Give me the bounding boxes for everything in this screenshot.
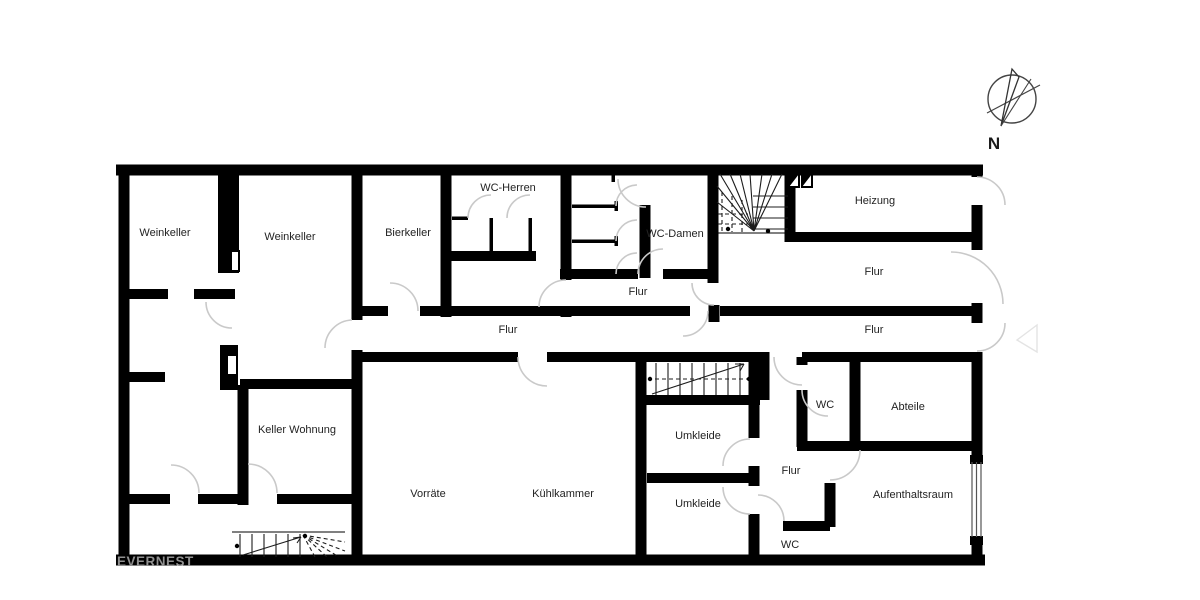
watermark-triangle bbox=[1017, 325, 1037, 352]
room-label-flur-rechts: Flur bbox=[865, 324, 884, 336]
room-label-flur-mitte: Flur bbox=[629, 286, 648, 298]
room-label-flur-haupt: Flur bbox=[499, 324, 518, 336]
door-arcs bbox=[171, 177, 1005, 521]
room-label-flur-unten: Flur bbox=[782, 465, 801, 477]
shaft-icon bbox=[789, 174, 812, 187]
floor-plan-svg: N Weinkeller Weinkeller Bierkeller WC-He… bbox=[0, 0, 1200, 600]
compass-icon bbox=[987, 69, 1040, 126]
room-label-vorraete: Vorräte bbox=[410, 488, 445, 500]
stairs-middle bbox=[648, 363, 752, 395]
room-label-umkleide-2: Umkleide bbox=[675, 498, 721, 510]
room-label-wc-rechts: WC bbox=[816, 399, 834, 411]
window-symbol bbox=[970, 455, 983, 545]
room-label-wc-herren: WC-Herren bbox=[480, 182, 536, 194]
walls bbox=[116, 165, 985, 565]
room-label-umkleide-1: Umkleide bbox=[675, 430, 721, 442]
room-label-kuehlkammer: Kühlkammer bbox=[532, 488, 594, 500]
room-label-wc-damen: WC-Damen bbox=[646, 228, 703, 240]
compass-north-label: N bbox=[988, 134, 1000, 153]
room-label-flur-oben: Flur bbox=[865, 266, 884, 278]
room-label-wc-unten: WC bbox=[781, 539, 799, 551]
room-label-heizung: Heizung bbox=[855, 195, 895, 207]
room-label-weinkeller-2: Weinkeller bbox=[264, 231, 315, 243]
room-label-aufenthaltsraum: Aufenthaltsraum bbox=[873, 489, 953, 501]
room-label-bierkeller: Bierkeller bbox=[385, 227, 431, 239]
room-label-abteile: Abteile bbox=[891, 401, 925, 413]
floor-plan-page: N Weinkeller Weinkeller Bierkeller WC-He… bbox=[0, 0, 1200, 600]
room-label-weinkeller-1: Weinkeller bbox=[139, 227, 190, 239]
room-label-keller-wohnung: Keller Wohnung bbox=[258, 424, 336, 436]
stairs-top-winder bbox=[717, 174, 788, 233]
brand-watermark: EVERNEST bbox=[117, 554, 194, 569]
stairs-bottom-left bbox=[235, 534, 345, 557]
